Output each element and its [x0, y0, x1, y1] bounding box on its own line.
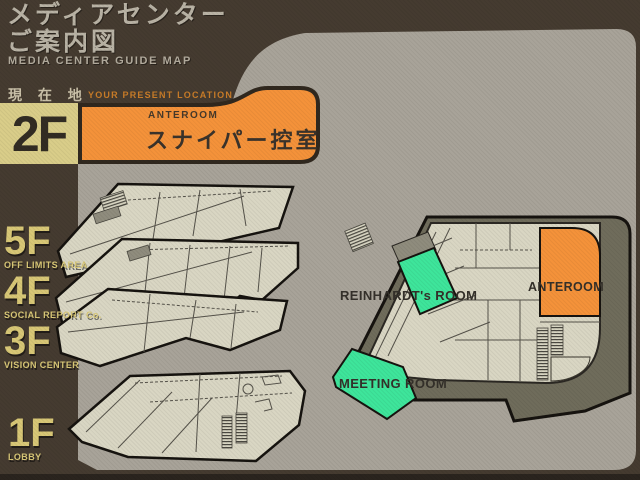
page-subtitle: MEDIA CENTER GUIDE MAP — [8, 55, 192, 67]
stairs-icon — [236, 413, 247, 443]
title-line2: ご案内図 — [7, 28, 119, 56]
current-room-ja: スナイパー控室 — [146, 123, 321, 155]
floor-name: VISION CENTER — [4, 360, 79, 370]
media-center-guide-map-screen: REINHARDT's ROOM ANTEROOM MEETING ROOM メ… — [0, 0, 640, 480]
floor-item-5f: 5F OFF LIMITS AREA — [4, 224, 88, 270]
label-meeting-room: MEETING ROOM — [339, 376, 447, 391]
floor-item-3f: 3F VISION CENTER — [4, 324, 79, 370]
page-title: メディアセンターご案内図 — [7, 2, 229, 56]
stairs-icon — [537, 328, 548, 380]
label-anteroom: ANTEROOM — [528, 280, 604, 294]
label-reinhardt-room: REINHARDT's ROOM — [340, 288, 477, 303]
floor-item-1f: 1F LOBBY — [8, 416, 55, 462]
floor-number: 1F — [8, 416, 55, 450]
current-location-label-ja: 現 在 地 — [8, 85, 88, 105]
stairs-icon — [551, 325, 563, 355]
bottom-border — [0, 474, 640, 480]
current-location-label-en: YOUR PRESENT LOCATION — [88, 90, 233, 100]
stairs-icon — [222, 416, 232, 448]
title-line1: メディアセンター — [7, 1, 229, 29]
guide-map-graphics: REINHARDT's ROOM ANTEROOM MEETING ROOM — [0, 0, 640, 480]
room-anteroom — [540, 228, 600, 316]
floor-number: 5F — [4, 224, 88, 258]
floor-item-4f: 4F SOCIAL REPORT Co. — [4, 274, 102, 320]
current-floor-number: 2F — [12, 109, 66, 159]
current-floor-badge: 2F — [0, 103, 78, 164]
current-room-en: ANTEROOM — [148, 110, 218, 121]
floor-number: 4F — [4, 274, 102, 308]
floor-number: 3F — [4, 324, 79, 358]
